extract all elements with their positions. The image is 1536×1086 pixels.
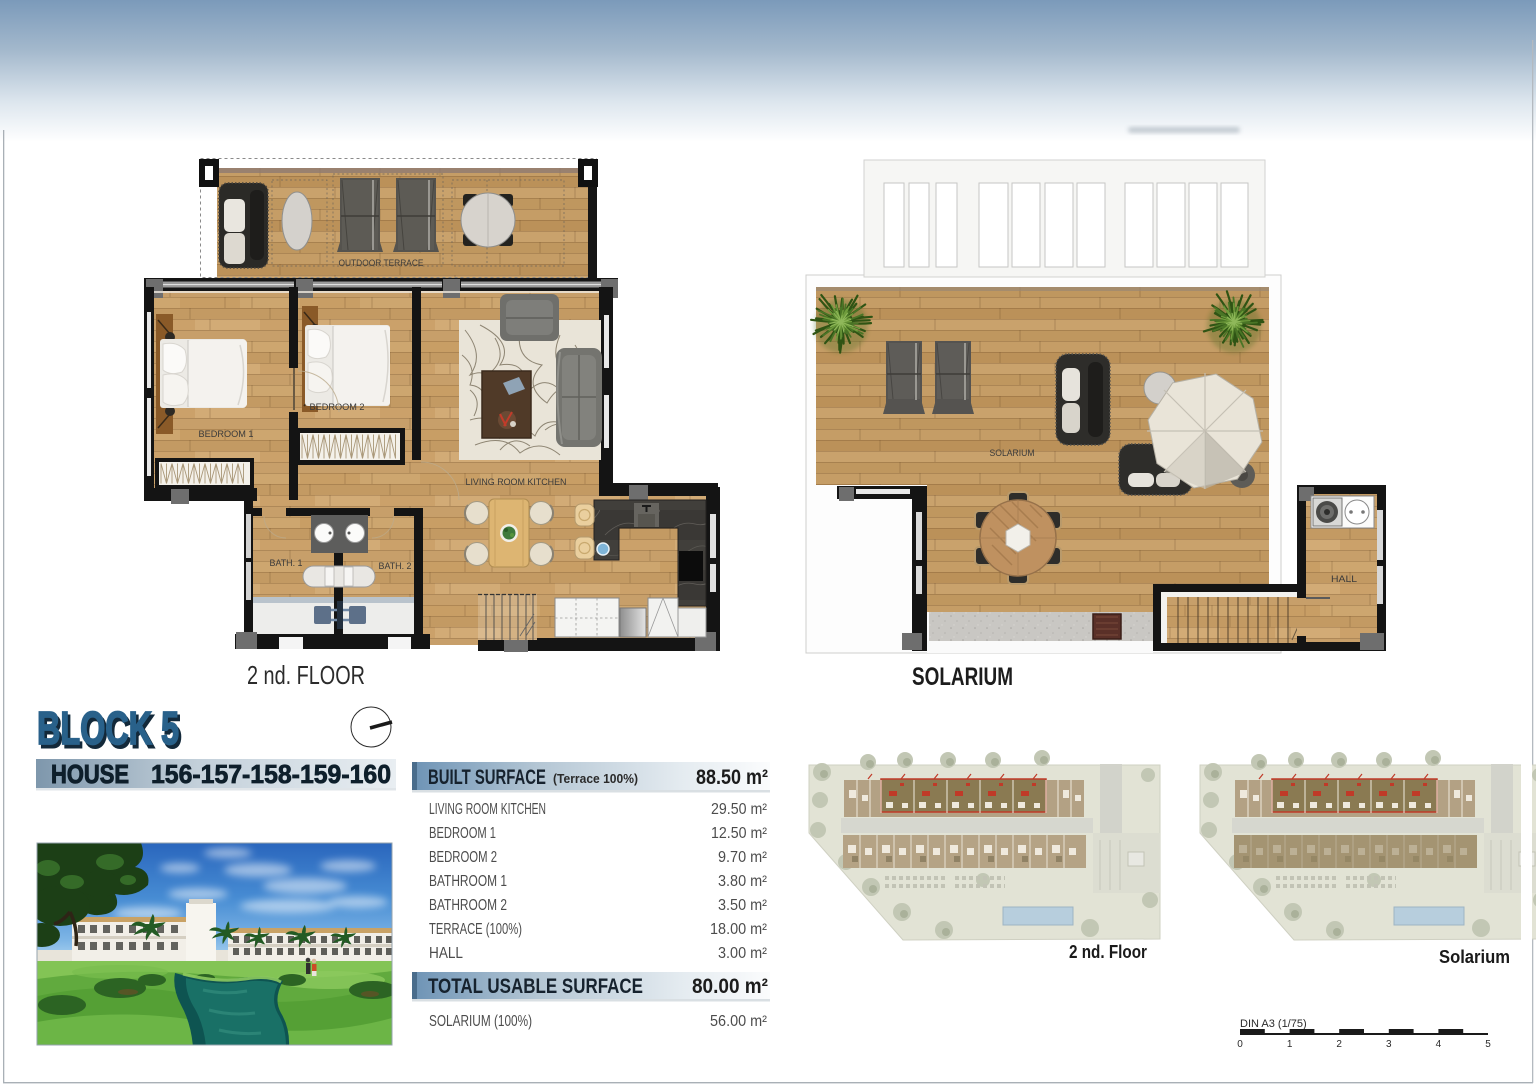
svg-text:2 nd. FLOOR: 2 nd. FLOOR (247, 660, 365, 690)
svg-text:BEDROOM 2: BEDROOM 2 (429, 849, 497, 866)
svg-text:SOLARIUM (100%): SOLARIUM (100%) (429, 1013, 532, 1030)
svg-text:BEDROOM 2: BEDROOM 2 (310, 402, 365, 413)
svg-text:2 nd. Floor: 2 nd. Floor (1069, 942, 1147, 962)
svg-text:BUILT SURFACE: BUILT SURFACE (428, 766, 546, 789)
svg-text:80.00 m²: 80.00 m² (692, 975, 768, 998)
svg-text:156-157-158-159-160: 156-157-158-159-160 (151, 759, 391, 789)
svg-text:3.80 m²: 3.80 m² (718, 873, 767, 890)
svg-text:HOUSE: HOUSE (51, 759, 129, 789)
svg-text:BATHROOM 1: BATHROOM 1 (429, 873, 507, 890)
svg-text:4: 4 (1436, 1039, 1442, 1050)
svg-text:29.50 m²: 29.50 m² (711, 801, 767, 818)
svg-text:0: 0 (1237, 1039, 1243, 1050)
svg-text:TOTAL USABLE SURFACE: TOTAL USABLE SURFACE (428, 975, 643, 998)
svg-text:BEDROOM 1: BEDROOM 1 (429, 825, 496, 842)
svg-text:BEDROOM 1: BEDROOM 1 (199, 429, 254, 440)
svg-text:9.70 m²: 9.70 m² (718, 849, 767, 866)
svg-text:18.00 m²: 18.00 m² (710, 921, 767, 938)
svg-text:56.00 m²: 56.00 m² (710, 1013, 767, 1030)
svg-text:HALL: HALL (429, 945, 463, 962)
svg-text:3.50 m²: 3.50 m² (718, 897, 767, 914)
svg-text:HALL: HALL (1331, 574, 1357, 585)
svg-text:88.50 m²: 88.50 m² (696, 766, 768, 789)
svg-text:BLOCK 5: BLOCK 5 (37, 702, 179, 754)
svg-text:3: 3 (1386, 1039, 1392, 1050)
svg-text:12.50 m²: 12.50 m² (711, 825, 767, 842)
svg-text:BATH. 2: BATH. 2 (379, 561, 412, 571)
svg-text:5: 5 (1485, 1039, 1491, 1050)
svg-text:OUTDOOR TERRACE: OUTDOOR TERRACE (339, 258, 424, 269)
svg-text:DIN A3 (1/75): DIN A3 (1/75) (1240, 1018, 1307, 1030)
svg-text:LIVING ROOM KITCHEN: LIVING ROOM KITCHEN (429, 801, 546, 818)
svg-text:1: 1 (1287, 1039, 1293, 1050)
svg-text:Solarium: Solarium (1439, 947, 1510, 967)
svg-text:2: 2 (1336, 1039, 1342, 1050)
svg-text:TERRACE (100%): TERRACE (100%) (429, 921, 522, 938)
svg-text:3.00 m²: 3.00 m² (718, 945, 767, 962)
svg-text:LIVING ROOM KITCHEN: LIVING ROOM KITCHEN (466, 477, 567, 488)
svg-text:SOLARIUM: SOLARIUM (990, 448, 1035, 458)
svg-text:SOLARIUM: SOLARIUM (912, 663, 1013, 691)
svg-text:BATH. 1: BATH. 1 (270, 558, 303, 568)
svg-text:BATHROOM 2: BATHROOM 2 (429, 897, 507, 914)
svg-text:(Terrace 100%): (Terrace 100%) (553, 771, 638, 786)
